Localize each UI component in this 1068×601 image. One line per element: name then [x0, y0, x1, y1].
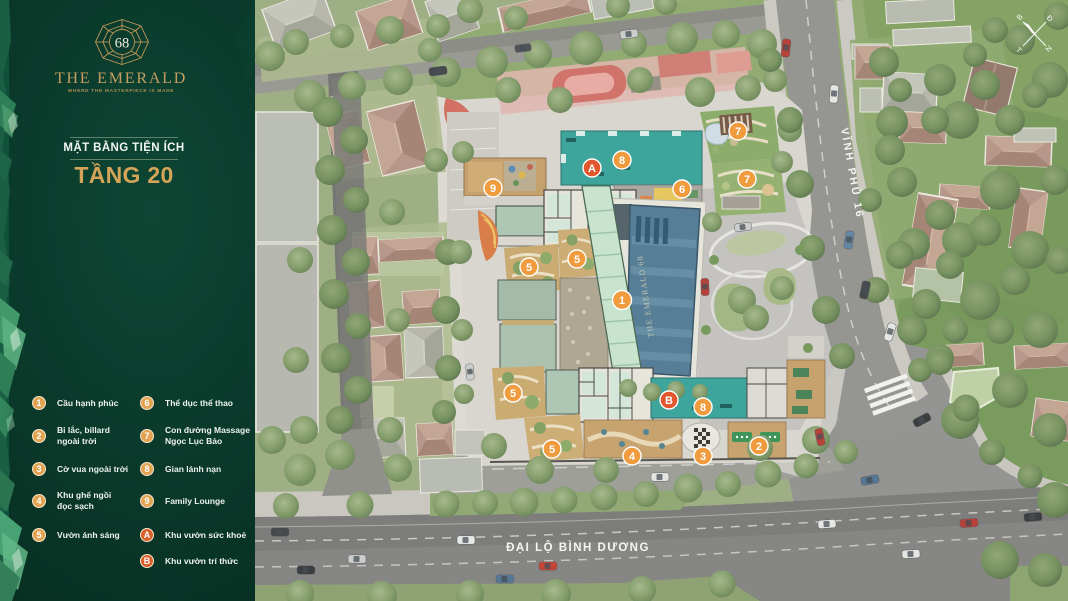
- svg-text:4: 4: [629, 451, 636, 463]
- svg-text:ĐẠI LỘ BÌNH DƯƠNG: ĐẠI LỘ BÌNH DƯƠNG: [506, 541, 650, 554]
- svg-text:A: A: [588, 163, 596, 175]
- svg-text:7: 7: [744, 174, 750, 186]
- svg-text:3: 3: [700, 451, 706, 463]
- svg-text:2: 2: [756, 441, 762, 453]
- svg-text:6: 6: [679, 184, 685, 196]
- svg-text:5: 5: [510, 388, 516, 400]
- svg-text:9: 9: [490, 183, 496, 195]
- svg-text:1: 1: [619, 295, 625, 307]
- svg-text:5: 5: [549, 444, 555, 456]
- svg-text:B: B: [665, 395, 673, 407]
- svg-text:8: 8: [619, 155, 625, 167]
- svg-text:8: 8: [700, 402, 706, 414]
- svg-text:5: 5: [526, 262, 532, 274]
- svg-text:7: 7: [735, 126, 741, 138]
- svg-text:68: 68: [115, 36, 130, 52]
- svg-text:5: 5: [574, 254, 580, 266]
